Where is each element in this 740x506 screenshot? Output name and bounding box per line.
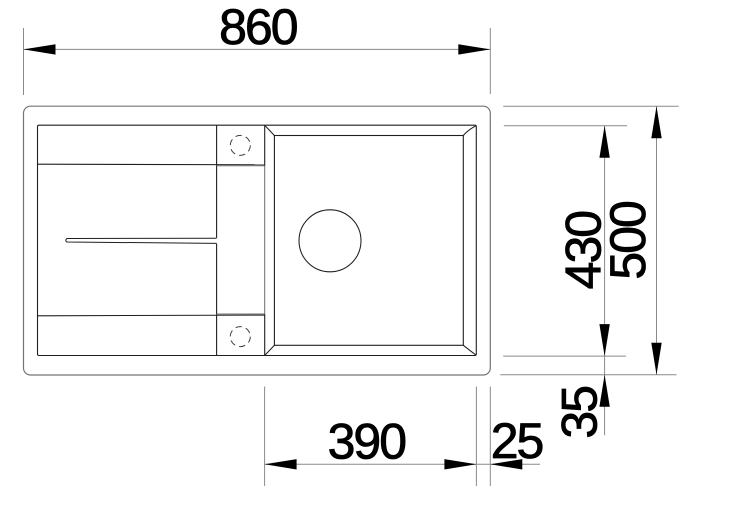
svg-text:390: 390	[328, 413, 406, 469]
svg-text:25: 25	[491, 413, 543, 469]
svg-text:500: 500	[600, 202, 656, 280]
svg-text:860: 860	[219, 0, 297, 55]
svg-text:35: 35	[552, 387, 608, 439]
